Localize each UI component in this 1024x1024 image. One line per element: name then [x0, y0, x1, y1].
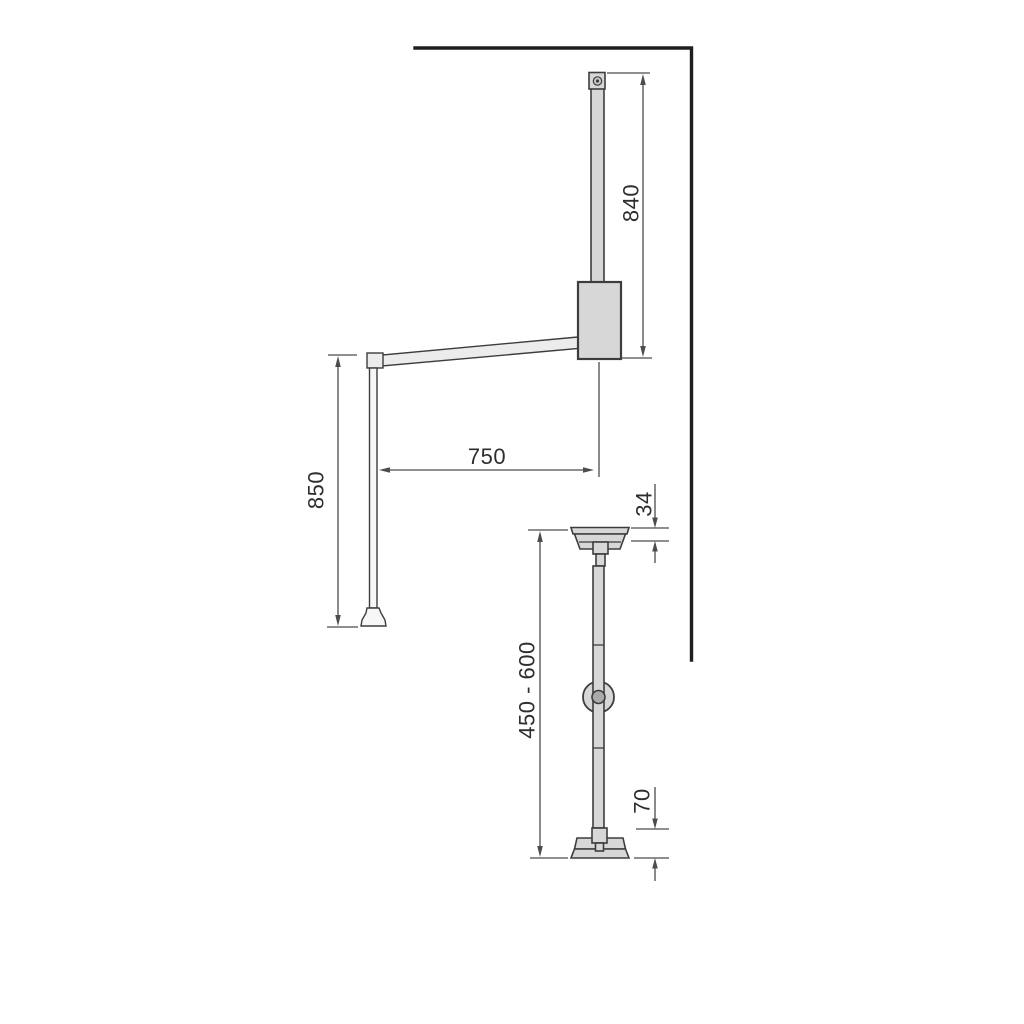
screw-center-dot: [596, 79, 599, 82]
dim-70-arrow-up: [652, 858, 658, 869]
dim-850-label: 850: [304, 471, 329, 509]
dim-34-arrow-up: [652, 541, 658, 552]
dim-850-arrow-down: [335, 615, 341, 626]
pull-rod: [370, 368, 378, 608]
dim-range-arrow-down: [537, 846, 543, 857]
dim-range-label: 450 - 600: [515, 641, 540, 738]
pull-handle-foot: [361, 608, 386, 626]
lift-rail: [591, 88, 604, 284]
dim-750-arrow-right: [583, 467, 594, 473]
dim-850-arrow-up: [335, 356, 341, 367]
dim-840-label: 840: [619, 184, 644, 222]
swivel-arm: [382, 337, 578, 366]
top-bracket-flange: [571, 528, 629, 535]
knob-hub: [592, 691, 605, 704]
dim-840-arrow-up: [640, 74, 646, 85]
dim-range-arrow-up: [537, 531, 543, 542]
dim-750-label: 750: [468, 444, 506, 469]
dim-840-arrow-down: [640, 346, 646, 357]
dim-34-label: 34: [632, 491, 657, 516]
top-connector-outer: [593, 542, 608, 554]
mounting-block: [578, 282, 621, 359]
top-connector-inner: [596, 554, 605, 566]
dim-34-arrow-down: [652, 518, 658, 529]
dim-750-arrow-left: [379, 467, 390, 473]
base-connector-outer: [592, 828, 607, 843]
technical-drawing: 840 850 750 450 - 600 34 70: [0, 0, 1024, 1024]
base-connector-inner: [596, 843, 604, 851]
drawing-svg: 840 850 750 450 - 600 34 70: [0, 0, 1024, 1024]
dim-70-arrow-down: [652, 819, 658, 830]
dim-70-label: 70: [630, 788, 655, 813]
arm-end-cap: [367, 353, 383, 368]
